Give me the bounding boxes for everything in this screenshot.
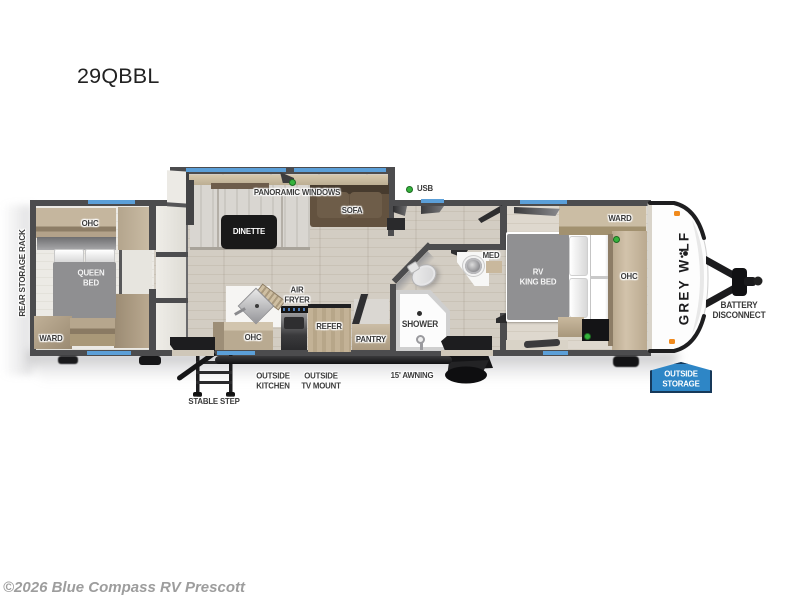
svg-text:GREY W LF: GREY W LF: [677, 231, 692, 326]
